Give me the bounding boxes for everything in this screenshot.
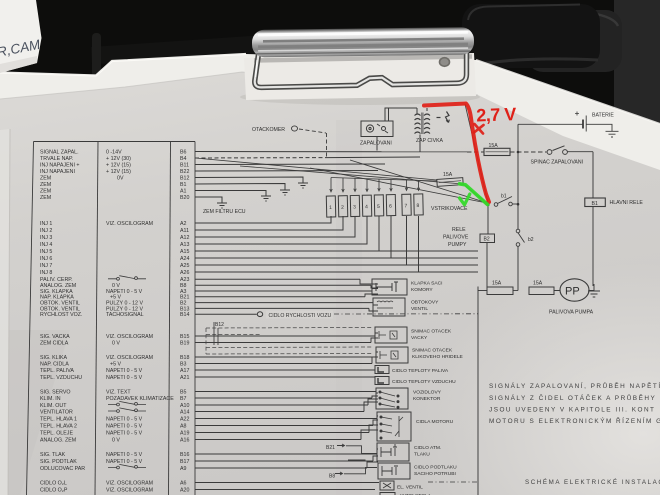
svg-text:B14: B14 bbox=[180, 312, 189, 318]
svg-text:6: 6 bbox=[389, 204, 392, 210]
svg-text:SIG. TLAK: SIG. TLAK bbox=[40, 452, 66, 458]
svg-text:INJ 3: INJ 3 bbox=[40, 235, 52, 241]
svg-text:PP: PP bbox=[565, 286, 580, 298]
svg-text:ZEM: ZEM bbox=[40, 188, 51, 194]
svg-text:POZADAVEK KLIMATIZACE: POZADAVEK KLIMATIZACE bbox=[106, 396, 174, 402]
svg-text:EL. VENTIL: EL. VENTIL bbox=[397, 485, 423, 491]
svg-text:ZEM FILTRU ECU: ZEM FILTRU ECU bbox=[203, 209, 246, 215]
svg-text:SPINAC ZAPALOVANI: SPINAC ZAPALOVANI bbox=[531, 160, 584, 166]
svg-text:B22: B22 bbox=[180, 169, 189, 175]
svg-text:A25: A25 bbox=[180, 263, 189, 269]
svg-text:CIDLO TEPLOTY VZDUCHU: CIDLO TEPLOTY VZDUCHU bbox=[392, 379, 456, 385]
svg-text:B21: B21 bbox=[326, 445, 335, 451]
svg-text:2,7 V: 2,7 V bbox=[476, 104, 517, 125]
svg-text:VOZIDLOVY: VOZIDLOVY bbox=[413, 390, 442, 396]
svg-text:KLIM. OUT: KLIM. OUT bbox=[40, 403, 67, 409]
svg-text:ANALOG. ZEM: ANALOG. ZEM bbox=[40, 437, 76, 443]
svg-text:INJ 2: INJ 2 bbox=[40, 228, 52, 234]
svg-text:b1: b1 bbox=[501, 194, 507, 200]
svg-text:NAPETI 0 - 5 V: NAPETI 0 - 5 V bbox=[106, 423, 143, 429]
svg-text:B16: B16 bbox=[180, 452, 189, 458]
svg-text:B8: B8 bbox=[329, 474, 335, 480]
svg-text:15A: 15A bbox=[489, 143, 499, 149]
svg-text:B1: B1 bbox=[180, 182, 187, 188]
svg-text:TEPL. VZDUCHU: TEPL. VZDUCHU bbox=[40, 375, 82, 381]
svg-text:B6: B6 bbox=[180, 149, 187, 155]
svg-text:SIG. KLIKA: SIG. KLIKA bbox=[40, 355, 68, 361]
svg-text:B12: B12 bbox=[215, 322, 224, 328]
svg-text:TACHOSIGNAL: TACHOSIGNAL bbox=[106, 312, 144, 318]
svg-text:8: 8 bbox=[416, 203, 419, 209]
svg-text:B11: B11 bbox=[180, 162, 189, 168]
svg-text:TEPL. PALIVA: TEPL. PALIVA bbox=[40, 368, 74, 374]
svg-text:NAP. CIDLA: NAP. CIDLA bbox=[40, 361, 69, 367]
svg-text:A17: A17 bbox=[180, 368, 189, 374]
svg-text:CIDLO RYCHLOSTI VOZU: CIDLO RYCHLOSTI VOZU bbox=[269, 313, 332, 319]
svg-text:CIDLO TEPLOTY PALIVA: CIDLO TEPLOTY PALIVA bbox=[392, 368, 449, 374]
svg-text:5: 5 bbox=[377, 204, 380, 210]
svg-text:A19: A19 bbox=[180, 430, 189, 436]
svg-text:VIZ. OSCILOGRAM: VIZ. OSCILOGRAM bbox=[106, 487, 153, 493]
svg-text:PALIVOVA PUMPA: PALIVOVA PUMPA bbox=[549, 310, 594, 316]
svg-text:VIZ. OSCILOGRAM: VIZ. OSCILOGRAM bbox=[106, 355, 153, 361]
svg-text:+5 V: +5 V bbox=[110, 361, 122, 367]
svg-text:INJ NAPAJENI +: INJ NAPAJENI + bbox=[40, 162, 80, 168]
svg-text:B15: B15 bbox=[180, 334, 189, 340]
svg-text:15A: 15A bbox=[533, 281, 543, 287]
svg-text:INJ 6: INJ 6 bbox=[40, 256, 52, 262]
svg-text:SIG. VACKA: SIG. VACKA bbox=[40, 334, 70, 340]
svg-text:3: 3 bbox=[353, 204, 356, 210]
svg-text:b2: b2 bbox=[528, 237, 534, 243]
svg-text:KOMORY: KOMORY bbox=[411, 287, 433, 293]
svg-text:VIZ. TEXT: VIZ. TEXT bbox=[106, 389, 131, 395]
svg-text:NAPETI 0 - 5 V: NAPETI 0 - 5 V bbox=[106, 416, 143, 422]
svg-text:SACIHO POTRUBI: SACIHO POTRUBI bbox=[414, 471, 456, 477]
svg-text:VENTILATOR: VENTILATOR bbox=[40, 409, 73, 415]
svg-text:RELE: RELE bbox=[452, 227, 466, 233]
svg-text:A21: A21 bbox=[180, 375, 189, 381]
svg-text:B1: B1 bbox=[592, 201, 598, 207]
svg-text:BATERIE: BATERIE bbox=[592, 113, 614, 119]
svg-text:KLAPKA SACI: KLAPKA SACI bbox=[411, 281, 443, 287]
svg-text:ZEM: ZEM bbox=[40, 182, 51, 188]
svg-text:0 V: 0 V bbox=[112, 340, 120, 346]
svg-text:A1: A1 bbox=[180, 188, 187, 194]
svg-text:PUMPY: PUMPY bbox=[448, 242, 467, 248]
svg-text:KLIKOVEHO HRIDELE: KLIKOVEHO HRIDELE bbox=[412, 354, 464, 360]
svg-text:SIGNÁLY ZAPALOVANÍ, PRŮBĚH NAP: SIGNÁLY ZAPALOVANÍ, PRŮBĚH NAPĚTÍ bbox=[489, 381, 660, 390]
svg-text:TEPL. HLAVA 1: TEPL. HLAVA 1 bbox=[40, 416, 77, 422]
svg-text:VACKY: VACKY bbox=[411, 335, 428, 341]
svg-text:KLIM. IN: KLIM. IN bbox=[40, 396, 61, 402]
svg-text:TLAKU: TLAKU bbox=[414, 451, 430, 457]
svg-text:B5: B5 bbox=[180, 389, 187, 395]
svg-text:TEPL. OLEJE: TEPL. OLEJE bbox=[40, 430, 73, 436]
svg-text:SIGNÁLY Z ČIDEL OTÁČEK A PRŮBĚ: SIGNÁLY Z ČIDEL OTÁČEK A PRŮBĚHY bbox=[489, 393, 656, 402]
svg-text:+ 12V (30): + 12V (30) bbox=[106, 156, 131, 162]
svg-text:SNIMAC OTACEK: SNIMAC OTACEK bbox=[411, 329, 452, 335]
svg-text:+ 12V (15): + 12V (15) bbox=[106, 169, 131, 175]
svg-text:ZEM: ZEM bbox=[40, 195, 51, 201]
svg-text:0 V: 0 V bbox=[112, 437, 120, 443]
svg-text:SNIMAC OTACEK: SNIMAC OTACEK bbox=[412, 348, 453, 354]
svg-text:B12: B12 bbox=[180, 175, 189, 181]
svg-text:B3: B3 bbox=[180, 361, 187, 367]
svg-text:A15: A15 bbox=[180, 249, 189, 255]
svg-text:0 -14V: 0 -14V bbox=[106, 149, 122, 155]
svg-text:B2: B2 bbox=[484, 237, 490, 243]
svg-text:NAPETI 0 - 5 V: NAPETI 0 - 5 V bbox=[106, 459, 143, 465]
svg-text:INJ 1: INJ 1 bbox=[40, 221, 52, 227]
svg-text:B17: B17 bbox=[180, 459, 189, 465]
svg-text:HLAVNI RELE: HLAVNI RELE bbox=[610, 200, 644, 206]
svg-text:INJ 8: INJ 8 bbox=[40, 270, 52, 276]
svg-text:B20: B20 bbox=[180, 195, 189, 201]
svg-text:INJ 5: INJ 5 bbox=[40, 249, 52, 255]
svg-text:B7: B7 bbox=[180, 396, 187, 402]
svg-text:ZEM: ZEM bbox=[40, 175, 51, 181]
svg-text:NAPETI 0 - 5 V: NAPETI 0 - 5 V bbox=[106, 368, 143, 374]
svg-text:INJ 4: INJ 4 bbox=[40, 242, 52, 248]
svg-text:SIG. SERVO: SIG. SERVO bbox=[40, 389, 71, 395]
svg-text:NAPETI 0 - 5 V: NAPETI 0 - 5 V bbox=[106, 375, 143, 381]
svg-text:A8: A8 bbox=[180, 423, 187, 429]
svg-text:PALIVOVE: PALIVOVE bbox=[443, 235, 469, 241]
svg-text:0V: 0V bbox=[117, 175, 124, 181]
svg-text:RYCHLOST VOZ.: RYCHLOST VOZ. bbox=[40, 312, 82, 318]
svg-text:2: 2 bbox=[341, 205, 344, 211]
svg-text:SIGNAL ZAPAL.: SIGNAL ZAPAL. bbox=[40, 149, 79, 155]
svg-text:CIDLA MOTORU: CIDLA MOTORU bbox=[416, 419, 454, 425]
svg-text:TRVALE NAP.: TRVALE NAP. bbox=[40, 156, 73, 162]
svg-text:A2: A2 bbox=[180, 221, 187, 227]
svg-text:A16: A16 bbox=[180, 437, 189, 443]
svg-text:A11: A11 bbox=[180, 228, 189, 234]
svg-text:A10: A10 bbox=[180, 403, 189, 409]
svg-text:VENTIL: VENTIL bbox=[411, 306, 428, 312]
svg-text:A22: A22 bbox=[180, 416, 189, 422]
svg-text:KONEKTOR: KONEKTOR bbox=[413, 396, 441, 402]
svg-text:B19: B19 bbox=[180, 340, 189, 346]
svg-text:VIZ. OSCILOGRAM: VIZ. OSCILOGRAM bbox=[106, 334, 153, 340]
svg-text:ZAP CIVKA: ZAP CIVKA bbox=[416, 138, 444, 144]
svg-text:CIDLO ATM.: CIDLO ATM. bbox=[414, 445, 441, 451]
svg-text:VSTRIKOVACE: VSTRIKOVACE bbox=[431, 206, 468, 212]
svg-text:A26: A26 bbox=[180, 270, 189, 276]
svg-text:ZAPALOVANI: ZAPALOVANI bbox=[360, 141, 392, 147]
svg-text:15A: 15A bbox=[492, 281, 502, 287]
svg-text:VIZ. OSCILOGRAM: VIZ. OSCILOGRAM bbox=[106, 480, 153, 486]
svg-text:JSOU UVEDENY V KAPITOLE III. K: JSOU UVEDENY V KAPITOLE III. KONT bbox=[489, 407, 655, 414]
svg-text:A13: A13 bbox=[180, 242, 189, 248]
svg-text:+ 12V (15): + 12V (15) bbox=[106, 162, 131, 168]
svg-text:A14: A14 bbox=[180, 409, 189, 415]
svg-text:A24: A24 bbox=[180, 256, 189, 262]
svg-text:SCHÉMA ELEKTRICKÉ INSTALACE: SCHÉMA ELEKTRICKÉ INSTALACE bbox=[525, 479, 660, 486]
svg-text:CIDLO O₂L: CIDLO O₂L bbox=[40, 480, 67, 486]
svg-text:ODLUCOVAC PAR: ODLUCOVAC PAR bbox=[40, 466, 85, 472]
svg-text:4: 4 bbox=[365, 204, 368, 210]
svg-text:CIDLO O₂P: CIDLO O₂P bbox=[40, 487, 68, 493]
svg-text:MOTORU S ELEKTRONICKÝM ŘÍZENÍM: MOTORU S ELEKTRONICKÝM ŘÍZENÍM GE bbox=[489, 416, 660, 425]
svg-text:TEPL. HLAVA 2: TEPL. HLAVA 2 bbox=[40, 423, 77, 429]
svg-text:A6: A6 bbox=[180, 480, 187, 486]
svg-text:7: 7 bbox=[404, 203, 407, 209]
svg-text:VIZ. OSCILOGRAM: VIZ. OSCILOGRAM bbox=[106, 221, 153, 227]
svg-text:ZEM CIDLA: ZEM CIDLA bbox=[40, 340, 69, 346]
svg-text:A12: A12 bbox=[180, 235, 189, 241]
svg-text:OBTOKOVY: OBTOKOVY bbox=[411, 300, 439, 306]
svg-text:A20: A20 bbox=[180, 487, 189, 493]
svg-text:B18: B18 bbox=[180, 355, 189, 361]
svg-text:A9: A9 bbox=[180, 466, 187, 472]
svg-text:INJ 7: INJ 7 bbox=[40, 263, 52, 269]
svg-text:NAPETI 0 - 5 V: NAPETI 0 - 5 V bbox=[106, 430, 143, 436]
svg-text:INJ NAPAJENI: INJ NAPAJENI bbox=[40, 169, 75, 175]
svg-text:15A: 15A bbox=[443, 172, 453, 178]
svg-text:NAPETI 0 - 5 V: NAPETI 0 - 5 V bbox=[106, 452, 143, 458]
svg-text:OTACKOMER: OTACKOMER bbox=[252, 127, 285, 133]
svg-text:1: 1 bbox=[329, 205, 332, 211]
svg-text:B4: B4 bbox=[180, 156, 187, 162]
svg-text:SIG. PODTLAK: SIG. PODTLAK bbox=[40, 459, 77, 465]
svg-text:CIDLO PODTLAKU: CIDLO PODTLAKU bbox=[414, 465, 457, 471]
